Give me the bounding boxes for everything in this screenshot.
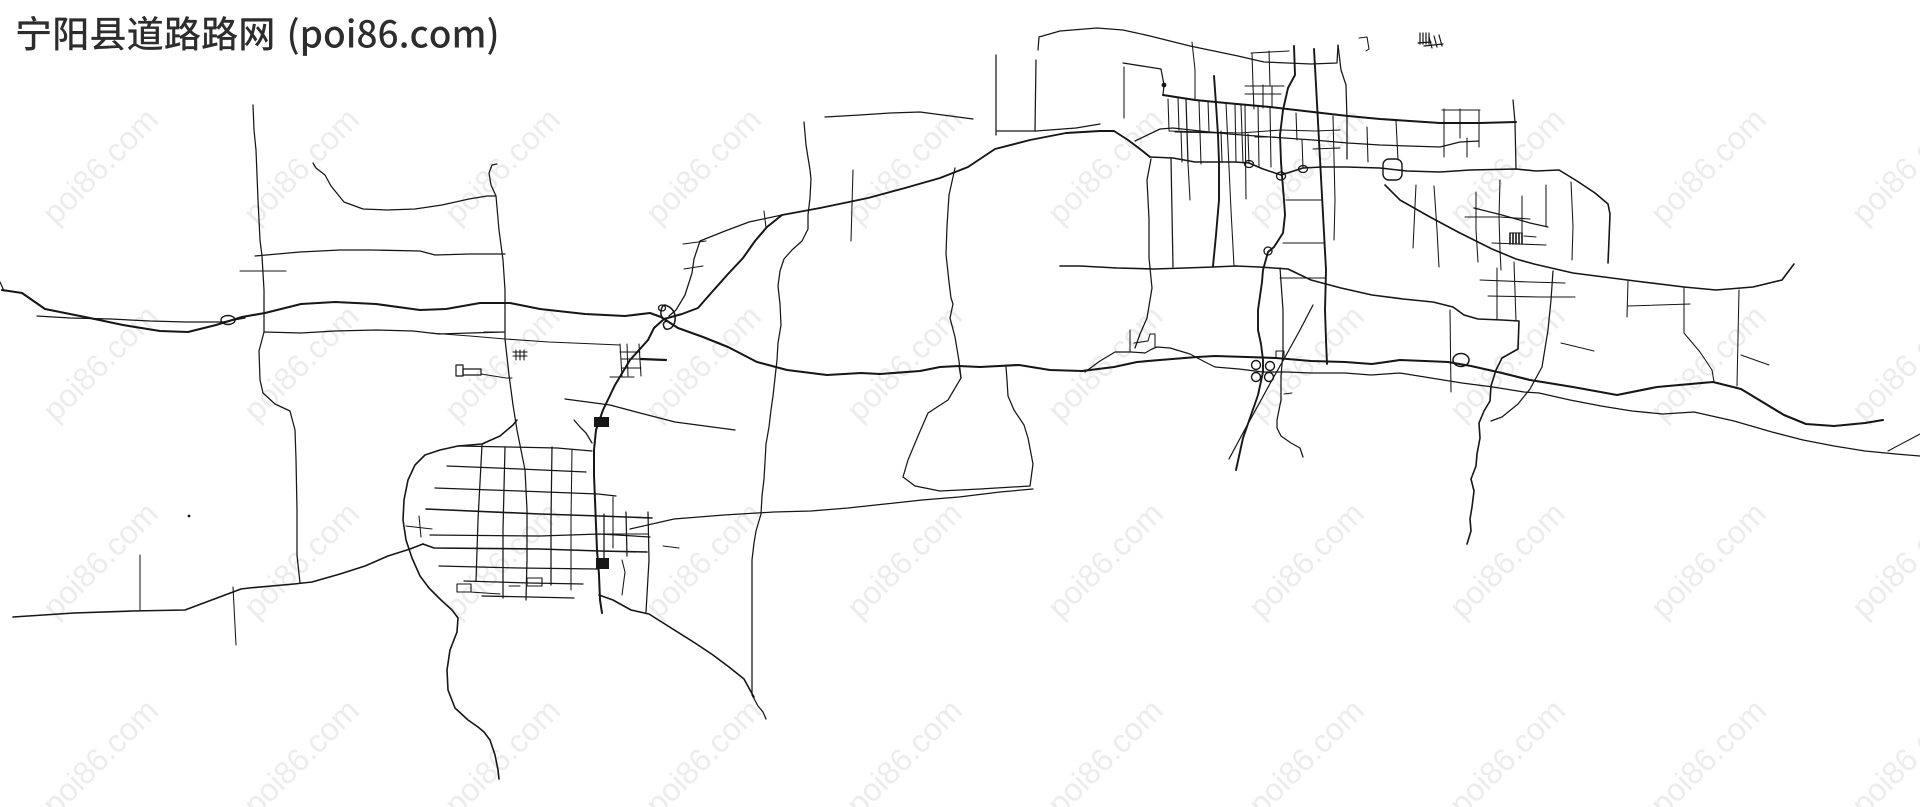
svg-text:poi86.com: poi86.com xyxy=(1643,101,1773,231)
svg-text:poi86.com: poi86.com xyxy=(1241,692,1371,807)
svg-text:poi86.com: poi86.com xyxy=(35,692,165,807)
svg-text:poi86.com: poi86.com xyxy=(1442,692,1572,807)
svg-text:poi86.com: poi86.com xyxy=(638,298,768,428)
svg-text:poi86.com: poi86.com xyxy=(638,101,768,231)
svg-text:poi86.com: poi86.com xyxy=(1040,495,1170,625)
svg-text:poi86.com: poi86.com xyxy=(437,101,567,231)
svg-text:poi86.com: poi86.com xyxy=(236,692,366,807)
svg-text:poi86.com: poi86.com xyxy=(638,692,768,807)
svg-text:poi86.com: poi86.com xyxy=(1643,495,1773,625)
svg-text:poi86.com: poi86.com xyxy=(1643,298,1773,428)
svg-text:poi86.com: poi86.com xyxy=(839,692,969,807)
svg-text:poi86.com: poi86.com xyxy=(437,298,567,428)
svg-text:poi86.com: poi86.com xyxy=(1040,101,1170,231)
svg-text:poi86.com: poi86.com xyxy=(35,495,165,625)
svg-text:poi86.com: poi86.com xyxy=(1844,692,1920,807)
svg-text:poi86.com: poi86.com xyxy=(1844,495,1920,625)
svg-text:poi86.com: poi86.com xyxy=(1844,101,1920,231)
svg-text:poi86.com: poi86.com xyxy=(1040,298,1170,428)
svg-text:poi86.com: poi86.com xyxy=(839,298,969,428)
svg-text:poi86.com: poi86.com xyxy=(638,495,768,625)
svg-text:poi86.com: poi86.com xyxy=(839,101,969,231)
svg-text:poi86.com: poi86.com xyxy=(1643,692,1773,807)
svg-text:poi86.com: poi86.com xyxy=(1040,692,1170,807)
svg-text:poi86.com: poi86.com xyxy=(35,101,165,231)
svg-text:poi86.com: poi86.com xyxy=(236,495,366,625)
svg-text:poi86.com: poi86.com xyxy=(839,495,969,625)
svg-text:poi86.com: poi86.com xyxy=(1442,495,1572,625)
svg-text:poi86.com: poi86.com xyxy=(1241,495,1371,625)
svg-text:poi86.com: poi86.com xyxy=(1442,298,1572,428)
svg-text:poi86.com: poi86.com xyxy=(1844,298,1920,428)
svg-text:poi86.com: poi86.com xyxy=(1442,101,1572,231)
svg-text:poi86.com: poi86.com xyxy=(236,101,366,231)
svg-text:poi86.com: poi86.com xyxy=(236,298,366,428)
